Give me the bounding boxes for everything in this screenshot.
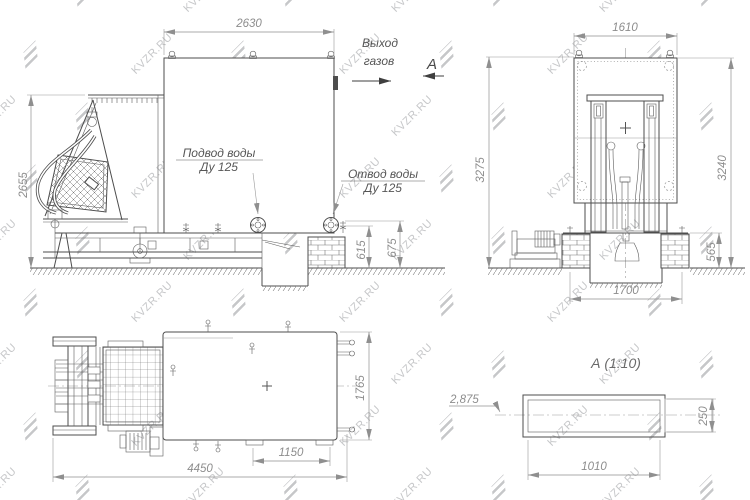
view-arrow-letter: А — [426, 56, 437, 73]
gas-outlet-label2: газов — [364, 54, 395, 68]
front-view: 1610 3275 3240 1700 565 — [475, 22, 745, 304]
support-foot — [316, 440, 333, 445]
boiler-body-plan — [163, 332, 337, 440]
dimension-label: 1610 — [612, 22, 638, 34]
side-view: 2630 2655 615 675 Подвод воды Ду 125 Отв… — [18, 18, 445, 291]
ground-hatch — [308, 268, 445, 275]
furnace-chamber — [37, 95, 164, 268]
water-outlet-dn: Ду 125 — [362, 181, 402, 195]
dimension-label: 2630 — [235, 18, 262, 30]
dimension-label: 1150 — [279, 447, 304, 459]
detail-outer — [523, 395, 665, 437]
ground-hatch — [690, 268, 745, 275]
gas-outlet-label: Выход — [362, 36, 398, 50]
brick-pedestal — [308, 237, 345, 268]
dimension-label: 675 — [387, 238, 399, 258]
lifting-eyes — [169, 51, 335, 58]
lifting-eyes-front — [576, 50, 674, 57]
damper-lever — [262, 240, 300, 249]
dimension-label: 3240 — [717, 155, 729, 181]
water-inlet-label: Подвод воды — [183, 146, 256, 160]
burner-bell — [615, 243, 639, 261]
dimension-label: 250 — [698, 406, 710, 427]
dimension-label: 2655 — [18, 172, 30, 199]
gas-outlet-stub — [333, 76, 338, 90]
dimension-label: 1765 — [355, 375, 367, 401]
detail-view: А (1:10) 1010 250 2,875 — [449, 355, 722, 480]
water-inlet-dn: Ду 125 — [198, 160, 238, 174]
fan-motor — [510, 231, 560, 268]
dimension-label: 2,875 — [449, 394, 479, 406]
dimension-label: 1700 — [613, 285, 639, 297]
plan-view: 4450 1150 1765 — [48, 320, 372, 482]
brick-pedestal-right — [661, 234, 689, 268]
ground-hatch — [30, 268, 262, 275]
detail-inner — [528, 400, 660, 432]
brick-pedestal-left — [562, 234, 590, 268]
dimension-label: 615 — [356, 240, 368, 260]
dimension-label: 565 — [706, 242, 718, 262]
feeder-motor — [120, 427, 163, 456]
technical-drawing-sheet: KVZR.RUKVZR.RUKVZR.RUKVZR.RUKVZR.RUKVZR.… — [0, 0, 750, 500]
dimension-label: 1010 — [581, 461, 607, 473]
support-foot — [246, 440, 263, 445]
drawing-canvas: 2630 2655 615 675 Подвод воды Ду 125 Отв… — [0, 0, 750, 500]
dimension-label: 4450 — [187, 463, 213, 475]
pit-hatch — [262, 286, 308, 291]
water-outlet-label: Отвод воды — [348, 167, 418, 181]
detail-title: А (1:10) — [590, 355, 641, 371]
dimension-label: 3275 — [475, 157, 487, 183]
grate-plan — [103, 347, 163, 425]
ground-hatch — [488, 268, 562, 275]
